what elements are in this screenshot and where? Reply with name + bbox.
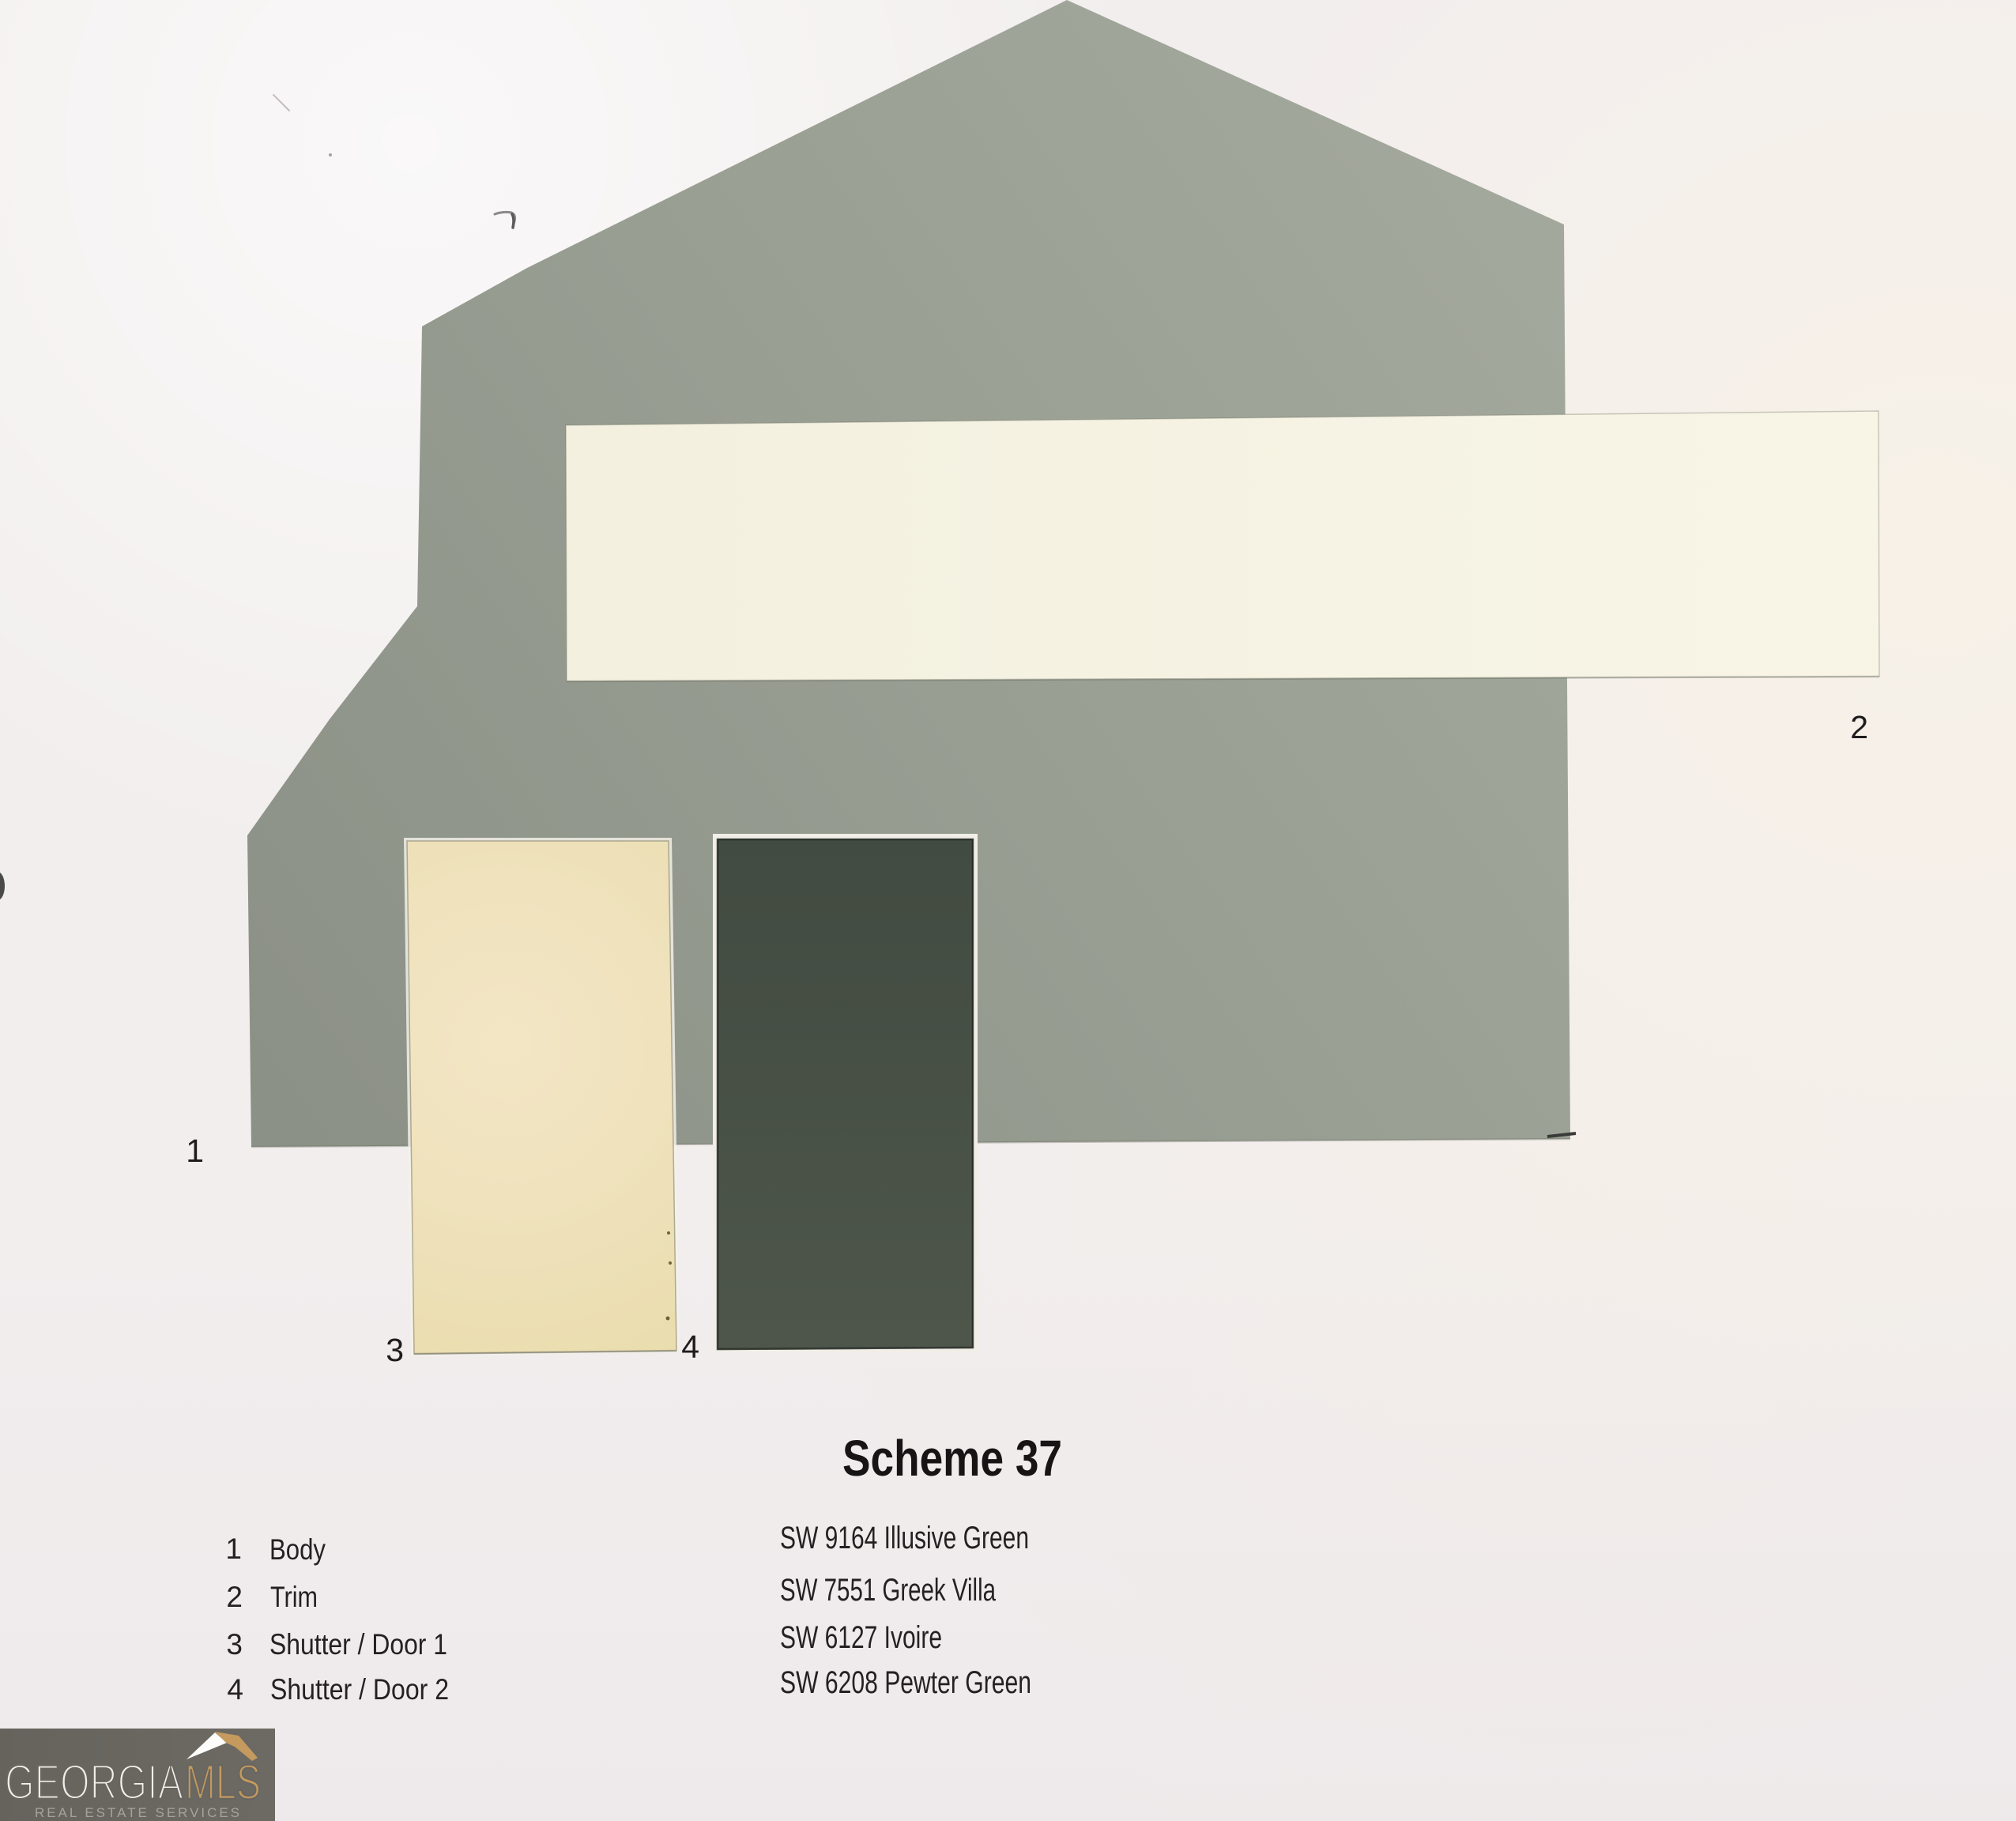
svg-text:Shutter / Door 1: Shutter / Door 1 bbox=[269, 1628, 447, 1661]
svg-text:1: 1 bbox=[186, 1133, 204, 1169]
svg-text:MLS: MLS bbox=[185, 1755, 261, 1810]
svg-text:Body: Body bbox=[269, 1533, 326, 1566]
svg-text:REAL ESTATE SERVICES: REAL ESTATE SERVICES bbox=[35, 1805, 239, 1820]
svg-text:3: 3 bbox=[386, 1332, 404, 1368]
svg-text:Trim: Trim bbox=[270, 1581, 318, 1613]
svg-text:2: 2 bbox=[226, 1581, 243, 1613]
svg-text:SW 7551 Greek Villa: SW 7551 Greek Villa bbox=[780, 1573, 997, 1608]
svg-text:GEORGIA: GEORGIA bbox=[5, 1755, 183, 1810]
svg-text:SW 9164 Illusive Green: SW 9164 Illusive Green bbox=[780, 1521, 1029, 1555]
svg-text:Shutter / Door 2: Shutter / Door 2 bbox=[270, 1673, 449, 1706]
svg-text:SW 6208 Pewter Green: SW 6208 Pewter Green bbox=[780, 1665, 1031, 1700]
svg-text:1: 1 bbox=[225, 1533, 242, 1565]
svg-text:4: 4 bbox=[681, 1329, 699, 1365]
svg-text:2: 2 bbox=[1850, 709, 1868, 745]
svg-text:SW 6127 Ivoire: SW 6127 Ivoire bbox=[780, 1620, 942, 1655]
svg-text:Scheme 37: Scheme 37 bbox=[842, 1430, 1062, 1487]
svg-text:4: 4 bbox=[227, 1673, 243, 1706]
svg-text:3: 3 bbox=[226, 1628, 243, 1661]
